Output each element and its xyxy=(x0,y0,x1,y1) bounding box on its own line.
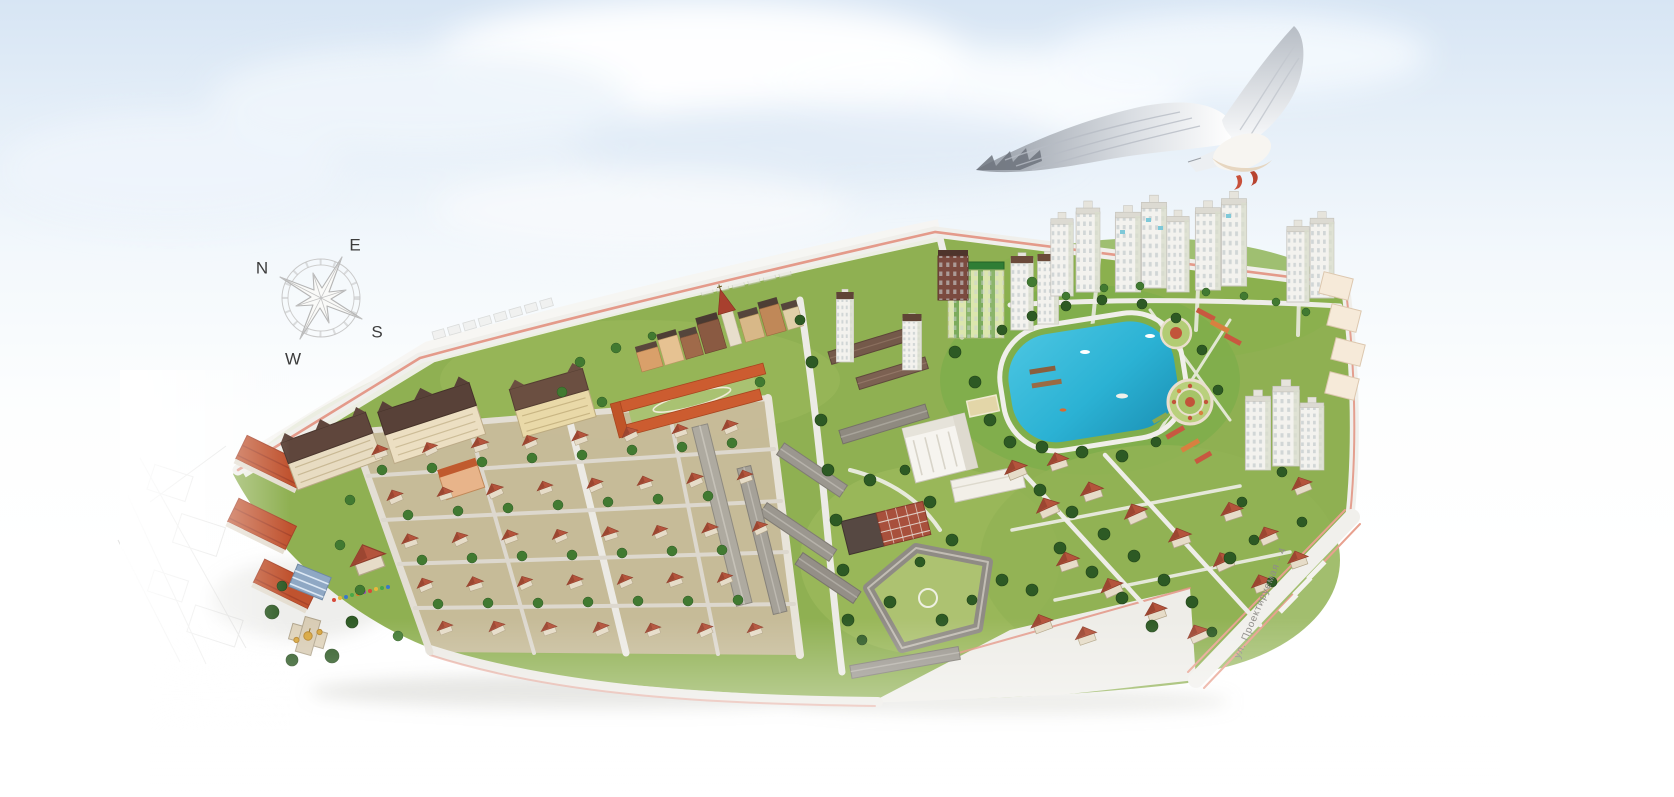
boat xyxy=(1145,334,1155,338)
compass-south-label: S xyxy=(371,323,382,342)
seagull-foot xyxy=(1234,175,1242,190)
masterplan-svg: N E S W ул. Проектируемая - 4 xyxy=(0,0,1674,797)
bottom-fade xyxy=(150,618,1500,797)
maroon-tower xyxy=(938,250,968,300)
boat xyxy=(1060,408,1067,411)
boat xyxy=(1080,350,1090,354)
masterplan-render: N E S W ул. Проектируемая - 4 xyxy=(0,0,1674,797)
left-fade xyxy=(120,370,290,730)
compass-rose-icon: N E S W xyxy=(256,236,383,369)
compass-west-label: W xyxy=(285,350,301,369)
compass-north-label: N xyxy=(256,259,268,278)
compass-east-label: E xyxy=(349,236,360,255)
boat xyxy=(1116,394,1128,399)
seagull-foot xyxy=(1250,171,1258,186)
